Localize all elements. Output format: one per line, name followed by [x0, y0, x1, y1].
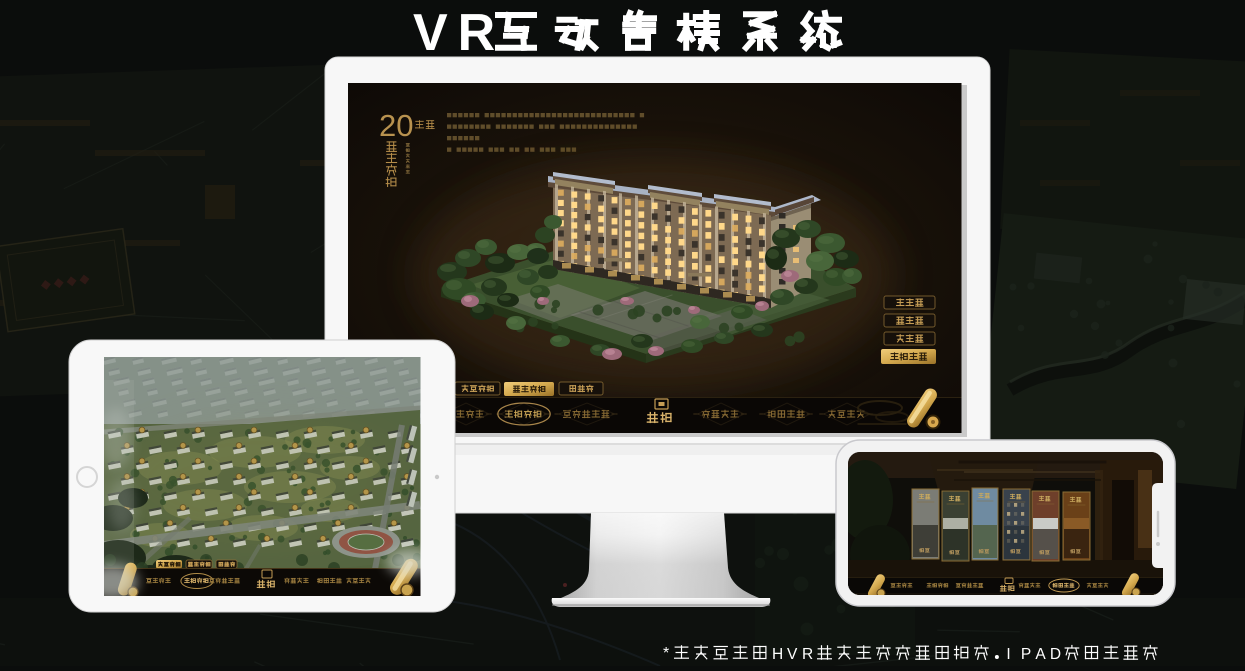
svg-text:P: P — [1021, 646, 1031, 663]
svg-text:D: D — [1050, 646, 1061, 663]
svg-text:A: A — [1035, 646, 1046, 663]
svg-text:20: 20 — [379, 108, 413, 143]
svg-text:VR: VR — [413, 4, 505, 62]
svg-text:H: H — [772, 646, 783, 663]
svg-text:R: R — [802, 646, 813, 663]
svg-text:V: V — [787, 646, 798, 663]
svg-text:*: * — [663, 645, 669, 662]
svg-text:I: I — [1006, 646, 1010, 663]
